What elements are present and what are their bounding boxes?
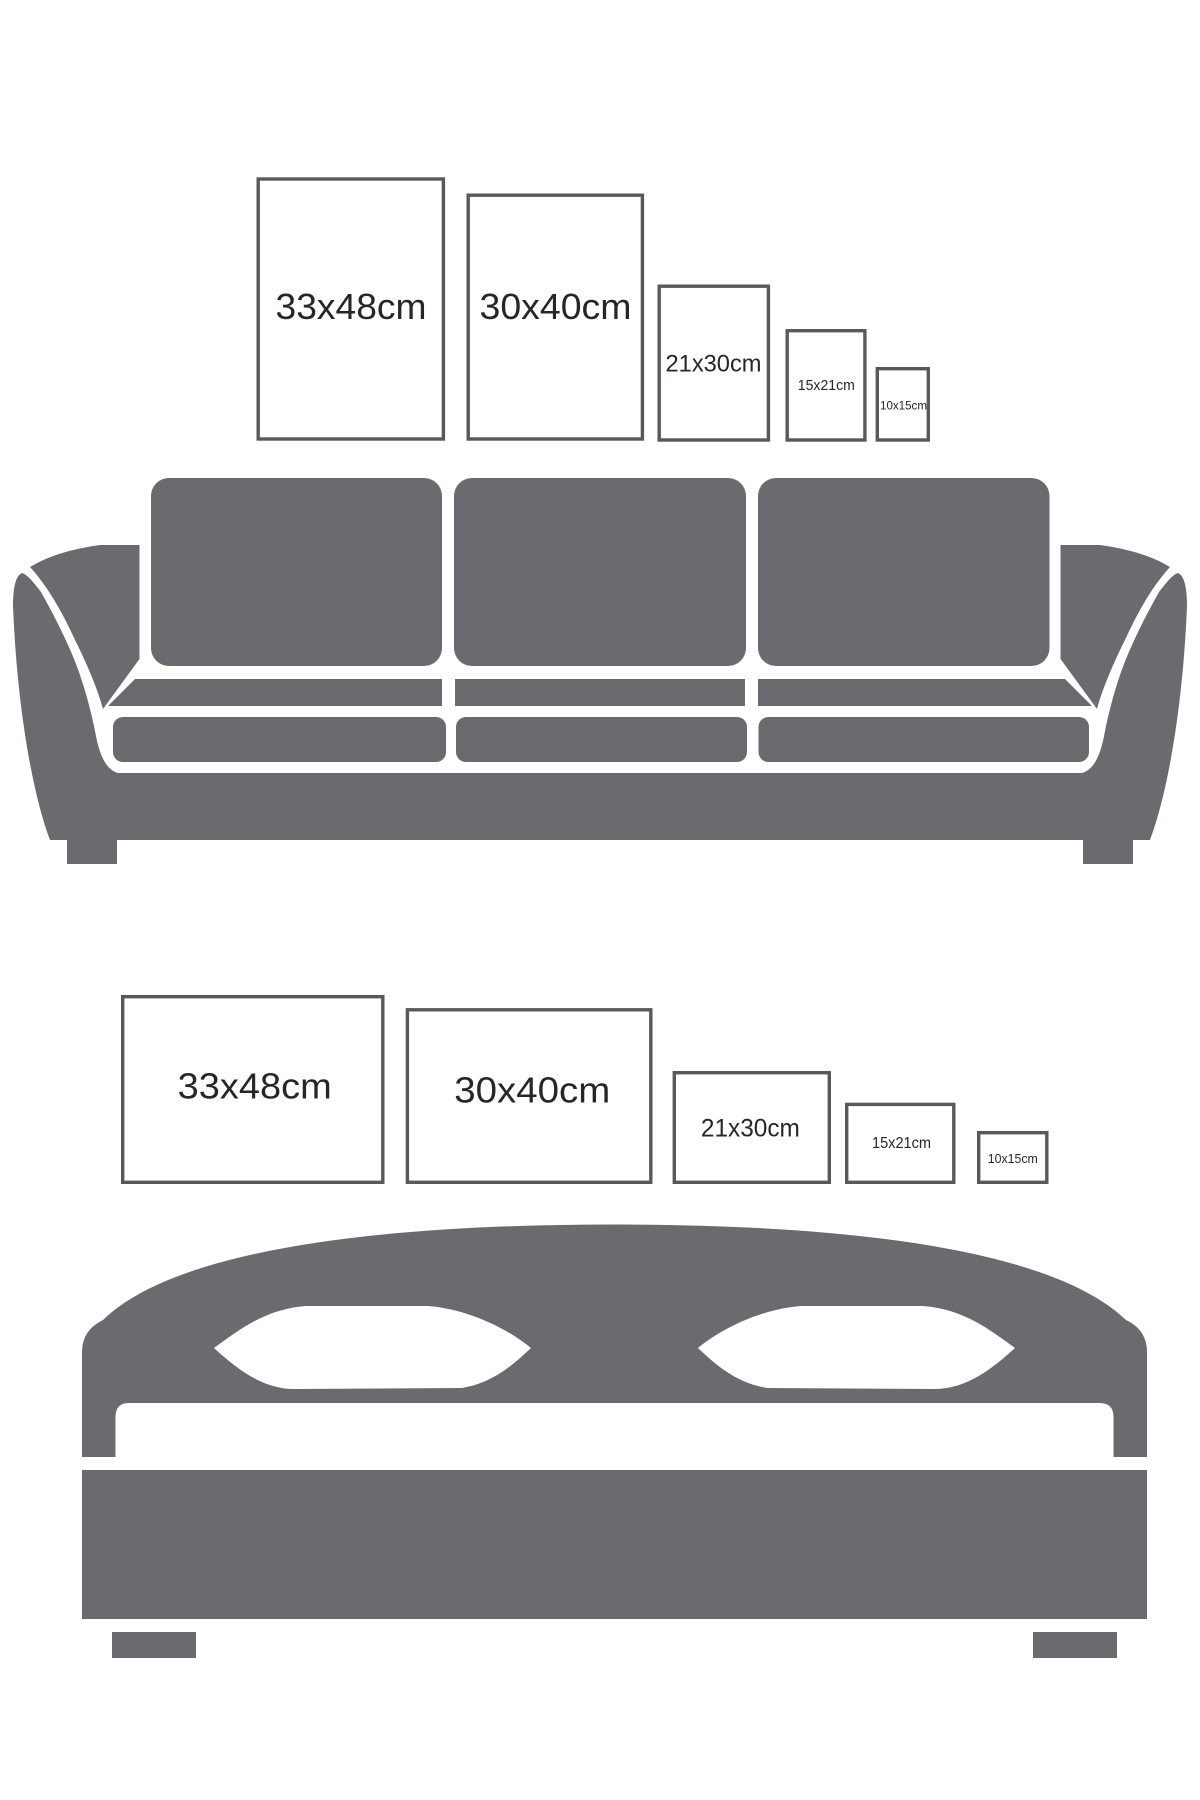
svg-text:10x15cm: 10x15cm — [880, 399, 927, 413]
svg-text:10x15cm: 10x15cm — [988, 1151, 1038, 1166]
svg-text:33x48cm: 33x48cm — [276, 286, 427, 327]
svg-text:21x30cm: 21x30cm — [666, 351, 762, 378]
svg-text:15x21cm: 15x21cm — [872, 1135, 931, 1152]
svg-text:15x21cm: 15x21cm — [798, 377, 855, 394]
svg-text:30x40cm: 30x40cm — [454, 1070, 610, 1111]
svg-text:33x48cm: 33x48cm — [178, 1065, 332, 1106]
svg-text:30x40cm: 30x40cm — [480, 286, 632, 327]
svg-text:21x30cm: 21x30cm — [701, 1114, 800, 1142]
